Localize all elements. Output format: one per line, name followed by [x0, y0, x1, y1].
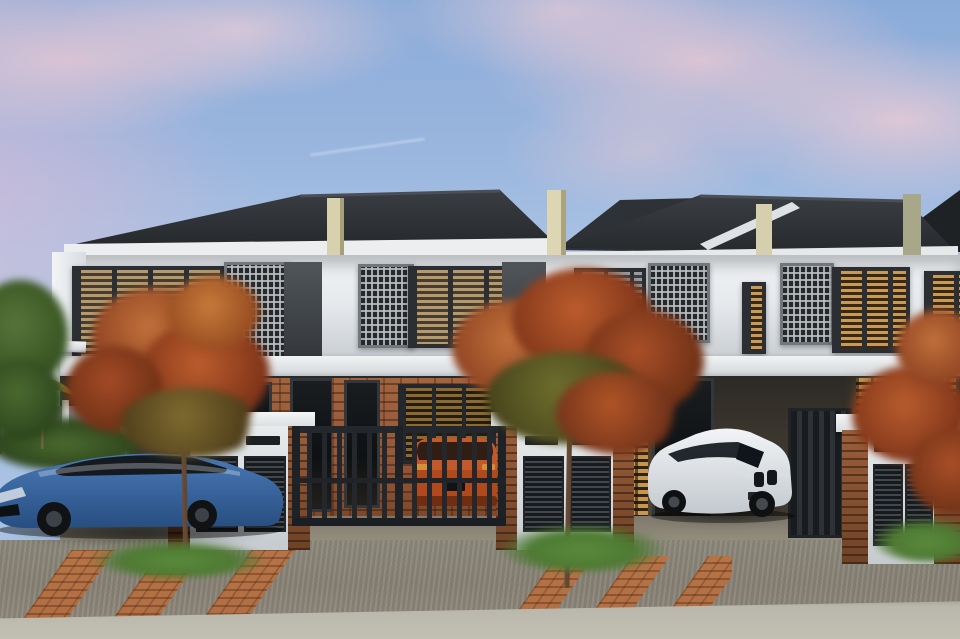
gate-post	[498, 426, 506, 526]
gate-post	[395, 426, 403, 526]
gate-rail	[292, 478, 506, 483]
roof-left	[66, 190, 558, 246]
coupe-kidney-grille	[767, 470, 777, 485]
terrace-houses-render: WA 787 A	[0, 0, 960, 639]
grass-tuft	[500, 524, 664, 572]
breeze-screen-unit2	[358, 264, 414, 348]
recessed-wall-unit1	[284, 262, 322, 356]
gate-post	[292, 426, 300, 526]
meter-panel	[570, 456, 611, 532]
amber-louvre-slit-unit3	[742, 282, 766, 354]
orange-foliage	[168, 276, 260, 350]
driveway-gate-centre	[292, 426, 506, 526]
orange-foliage	[556, 372, 678, 454]
coupe-rim	[669, 497, 680, 508]
coupe-kidney-grille	[754, 472, 764, 487]
pier-brick-pillar	[842, 430, 868, 564]
sedan-rim	[195, 508, 209, 522]
meter-panel	[523, 456, 564, 532]
breeze-screen-unit4	[780, 263, 834, 345]
gate-rail	[292, 518, 506, 526]
olive-foliage-accent	[120, 388, 260, 458]
grass-tuft	[92, 540, 264, 578]
coupe-rim	[756, 498, 768, 510]
sedan-rim	[46, 511, 62, 527]
